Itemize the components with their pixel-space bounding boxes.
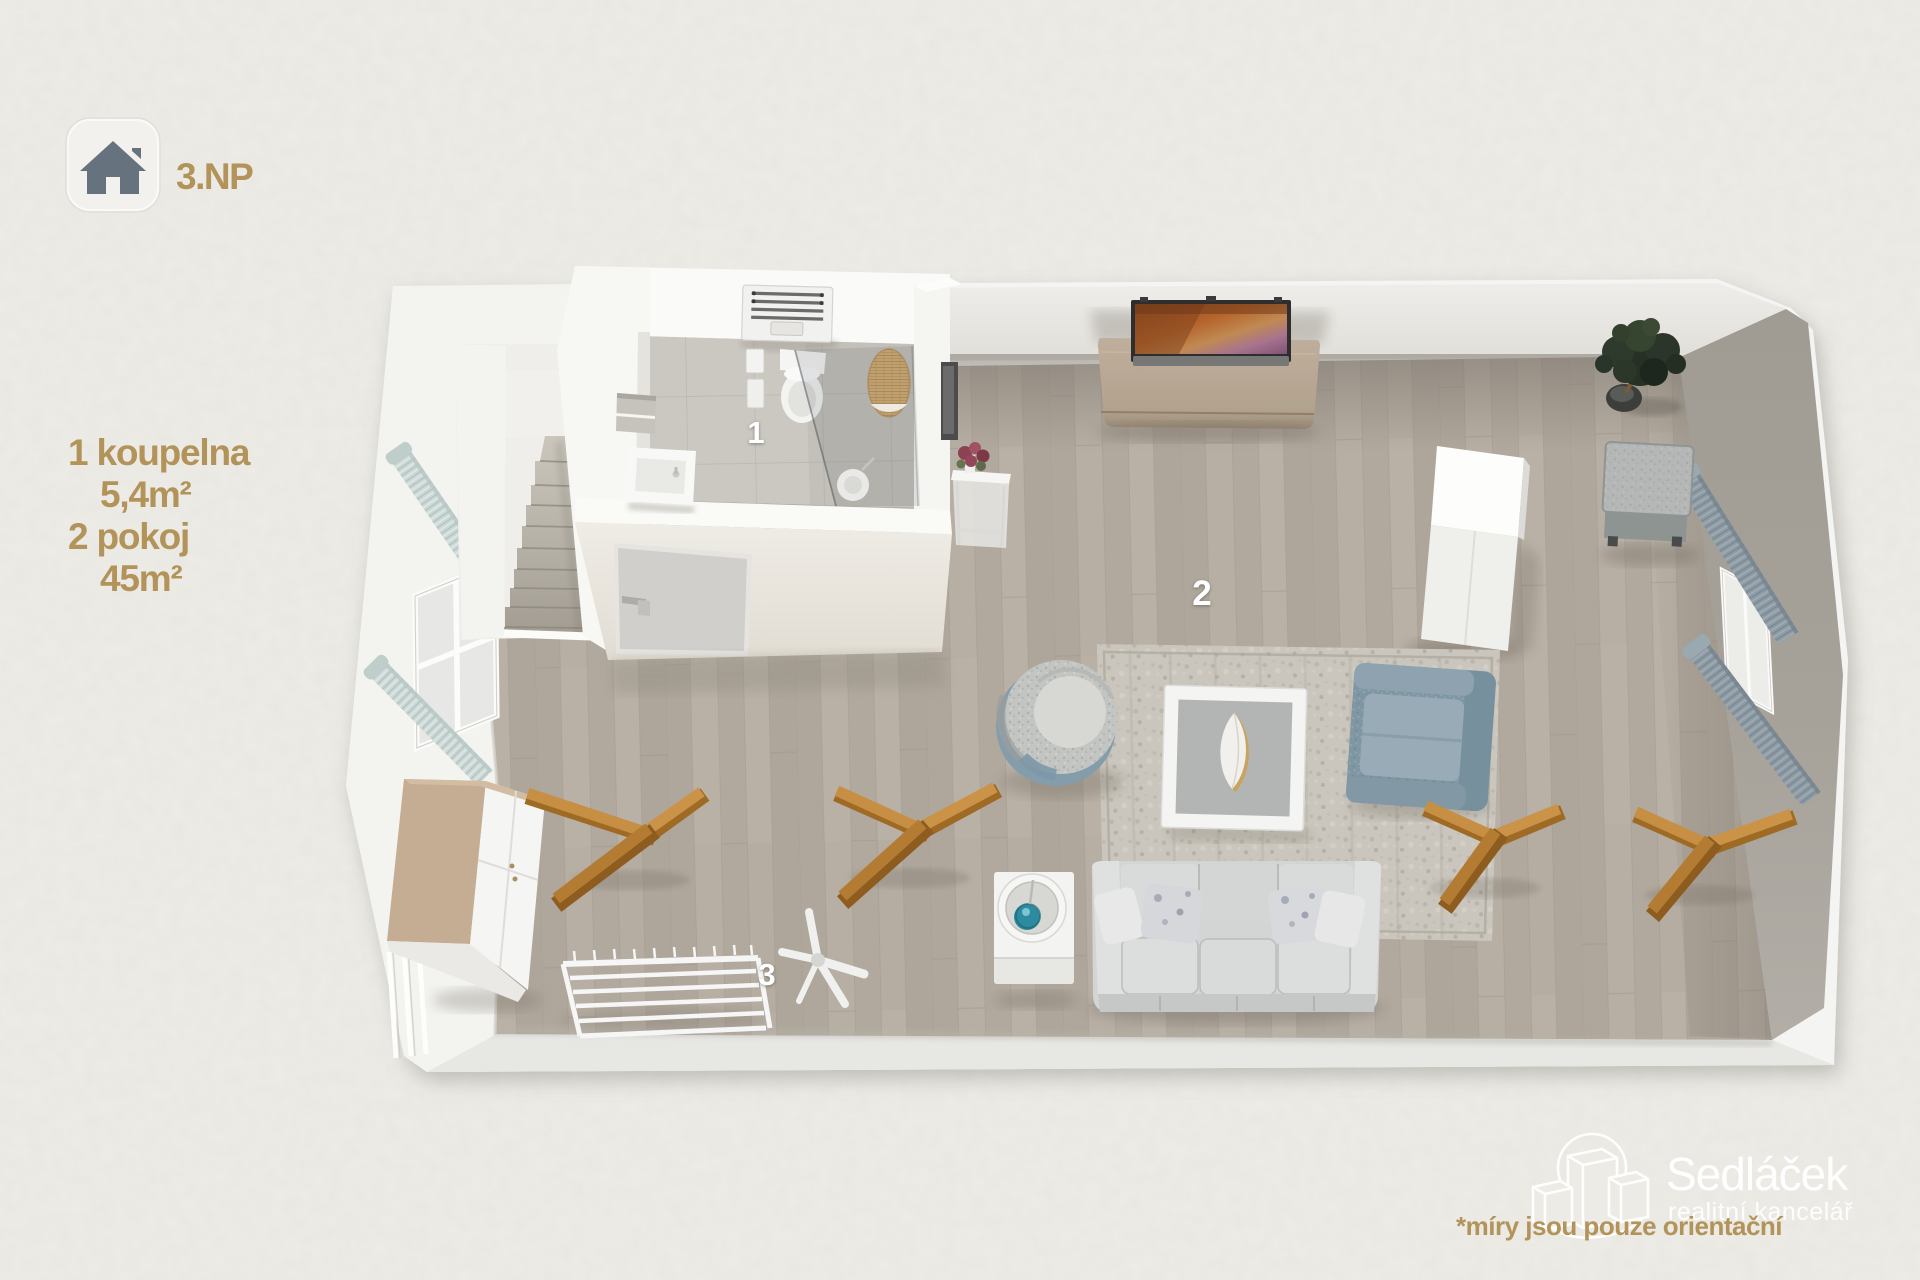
svg-text:Sedláček: Sedláček <box>1666 1148 1849 1200</box>
svg-text:5,4m²: 5,4m² <box>100 474 192 515</box>
svg-text:2: 2 <box>1192 574 1211 613</box>
svg-text:1 koupelna: 1 koupelna <box>68 432 251 473</box>
svg-text:1: 1 <box>747 415 764 450</box>
svg-text:45m²: 45m² <box>100 558 182 599</box>
svg-text:2 pokoj: 2 pokoj <box>68 516 189 557</box>
svg-text:3: 3 <box>758 957 775 992</box>
svg-text:3.NP: 3.NP <box>176 156 253 197</box>
svg-text:*míry jsou pouze orientační: *míry jsou pouze orientační <box>1456 1211 1783 1241</box>
